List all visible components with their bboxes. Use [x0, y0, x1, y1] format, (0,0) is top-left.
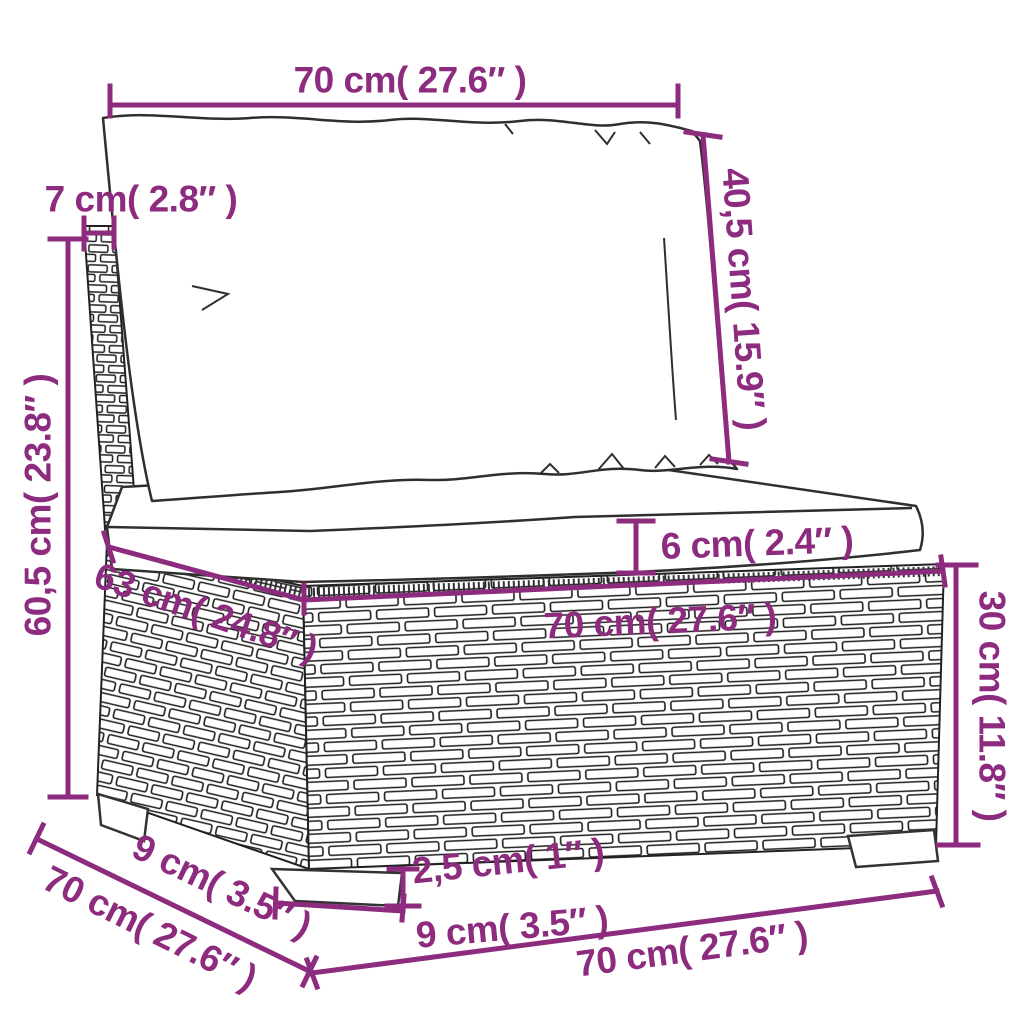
- back-cushion: [103, 115, 737, 501]
- label-seat-cushion-thickness: 6 cm( 2.4″ ): [660, 519, 854, 567]
- label-cushion-width-top: 70 cm( 27.6″ ): [294, 60, 527, 101]
- label-base-height: 30 cm( 11.8″ ): [972, 591, 1013, 822]
- label-total-height: 60,5 cm( 23.8″ ): [18, 374, 59, 637]
- dimension-diagram: 70 cm( 27.6″ ) 7 cm( 2.8″ ) 40,5 cm( 15.…: [0, 0, 1024, 1024]
- label-backrest-thickness: 7 cm( 2.8″ ): [45, 179, 238, 220]
- diagram-canvas: 70 cm( 27.6″ ) 7 cm( 2.8″ ) 40,5 cm( 15.…: [0, 0, 1024, 1024]
- foot-front-right: [848, 830, 938, 867]
